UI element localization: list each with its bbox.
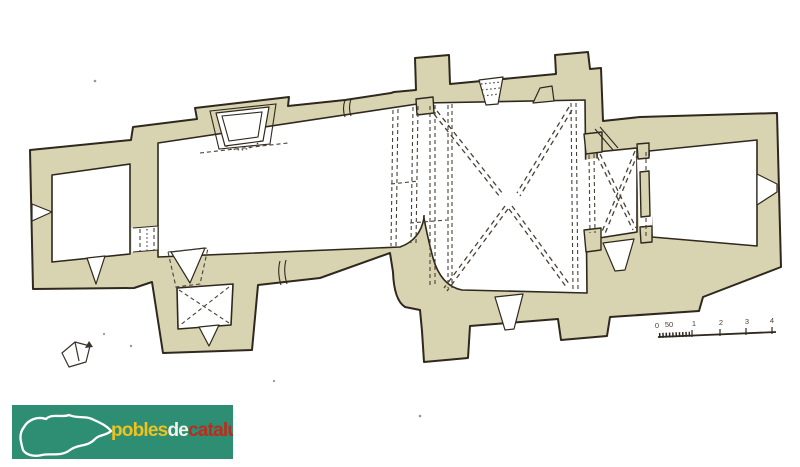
north-arrow-sketch	[62, 333, 105, 367]
speck	[419, 415, 422, 418]
north-sketch-outline	[62, 342, 90, 367]
scale-label-50: 50	[665, 320, 673, 329]
crossing-presbytery-respond-south	[584, 228, 601, 252]
logo-word-de: de	[167, 420, 188, 441]
speck	[273, 380, 275, 382]
scale-label-4: 4	[770, 316, 774, 325]
crossing-presbytery-opening	[583, 158, 600, 232]
crossing-presbytery-respond-north	[584, 132, 602, 154]
south-chapel-interior	[177, 284, 233, 329]
logo-word-pobles: pobles	[111, 420, 167, 441]
scale-label-1: 1	[692, 319, 696, 328]
sketch-dot	[103, 333, 105, 335]
logo-word-catalunya: catalunya	[188, 420, 233, 441]
scale-label-3: 3	[745, 317, 749, 326]
portal-niche	[216, 107, 269, 146]
scale-label-2: 2	[719, 318, 723, 327]
nave-crossing-respond	[416, 97, 434, 115]
site-logo[interactable]: poblesdecatalunya	[12, 405, 233, 459]
nave-crossing-opening	[420, 111, 429, 216]
scale-label-0: 0	[655, 321, 659, 330]
speck	[130, 345, 132, 347]
apse-interior	[649, 140, 757, 246]
scanned-plan-page: 0 50 1 2 3 4 poblesdecatalunya	[0, 0, 800, 467]
floor-plan-image: 0 50 1 2 3 4	[0, 0, 800, 467]
catalunya-map-outline-icon	[14, 405, 122, 459]
logo-wordmark: poblesdecatalunya	[111, 421, 233, 440]
church-floor-plan	[30, 52, 781, 362]
scale-bar: 0 50 1 2 3 4	[655, 316, 776, 337]
speck	[94, 80, 97, 83]
presbytery-apse-respond-north	[637, 143, 649, 159]
west-chapel-interior	[52, 164, 130, 262]
altar-slab	[640, 171, 650, 217]
